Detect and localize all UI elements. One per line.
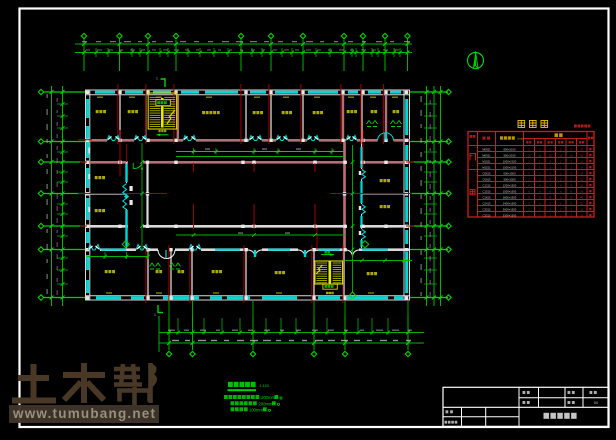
svg-text:1500×2100: 1500×2100 (503, 165, 517, 169)
svg-text:M1021: M1021 (482, 159, 491, 163)
svg-text:C1815: C1815 (483, 195, 491, 199)
svg-text:16: 16 (538, 153, 541, 157)
svg-text:3300×1500: 3300×1500 (503, 213, 517, 217)
svg-text:16: 16 (559, 153, 562, 157)
svg-text:1000×2100: 1000×2100 (503, 159, 517, 163)
svg-text:16: 16 (549, 153, 552, 157)
svg-text:100mm: 100mm (249, 407, 263, 412)
svg-text:900×2100: 900×2100 (503, 153, 516, 157)
svg-text:www.tumubang.net: www.tumubang.net (12, 406, 156, 421)
svg-text:1800×1500: 1800×1500 (503, 195, 517, 199)
svg-text:(mm): (mm) (518, 137, 525, 141)
svg-text:C0915: C0915 (483, 177, 491, 181)
svg-text:1: 1 (154, 313, 156, 317)
svg-text:800×2100: 800×2100 (503, 147, 516, 151)
svg-text:C1515: C1515 (483, 189, 491, 193)
svg-text:16: 16 (528, 153, 531, 157)
svg-text:1200×1500: 1200×1500 (503, 183, 517, 187)
svg-text:30: 30 (580, 189, 583, 193)
svg-text:C3015: C3015 (483, 207, 491, 211)
svg-text:1:100: 1:100 (260, 384, 270, 388)
svg-text:30: 30 (580, 201, 583, 205)
svg-text:10: 10 (580, 159, 583, 163)
svg-text:10: 10 (580, 207, 583, 211)
svg-text:10: 10 (580, 171, 583, 175)
svg-text:C0615: C0615 (483, 171, 491, 175)
svg-text:M0821: M0821 (482, 147, 491, 151)
svg-text:10: 10 (580, 177, 583, 181)
svg-text:C1215: C1215 (483, 183, 491, 187)
svg-text:80: 80 (580, 153, 583, 157)
svg-text:20: 20 (580, 183, 583, 187)
svg-text:C3315: C3315 (483, 213, 491, 217)
svg-text:3000×1500: 3000×1500 (503, 207, 517, 211)
svg-text:1: 1 (156, 77, 158, 81)
svg-text:04: 04 (594, 401, 598, 405)
svg-text:16: 16 (570, 153, 573, 157)
svg-text:1500×1500: 1500×1500 (503, 189, 517, 193)
svg-text:600×1500: 600×1500 (503, 171, 516, 175)
svg-text:900×1500: 900×1500 (503, 177, 516, 181)
svg-text:2400×1500: 2400×1500 (503, 201, 517, 205)
svg-text:200mm: 200mm (261, 395, 275, 400)
svg-text:10: 10 (580, 213, 583, 217)
svg-text:M1521: M1521 (482, 165, 491, 169)
svg-text:200mm: 200mm (259, 401, 273, 406)
svg-text:C2415: C2415 (483, 201, 491, 205)
svg-text:10: 10 (580, 147, 583, 151)
svg-text:40: 40 (580, 195, 583, 199)
svg-text:M0921: M0921 (482, 153, 491, 157)
